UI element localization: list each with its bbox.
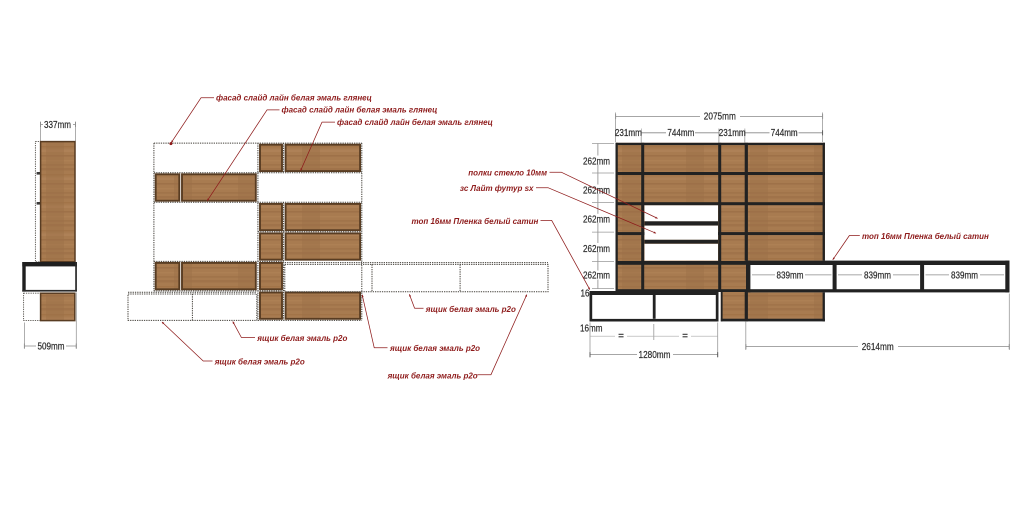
svg-text:262mm: 262mm: [583, 185, 610, 196]
svg-text:топ 16мм Пленка белый сатин: топ 16мм Пленка белый сатин: [862, 232, 989, 241]
svg-text:16mm: 16mm: [580, 324, 603, 335]
svg-text:=: =: [682, 331, 688, 342]
svg-text:262mm: 262mm: [583, 270, 610, 281]
svg-text:фасад слайд лайн белая эмаль г: фасад слайд лайн белая эмаль глянец: [216, 94, 372, 103]
svg-text:1280mm: 1280mm: [639, 350, 671, 361]
svg-text:2614mm: 2614mm: [862, 342, 894, 353]
svg-text:фасад слайд лайн белая эмаль г: фасад слайд лайн белая эмаль глянец: [337, 118, 493, 127]
svg-text:=: =: [618, 331, 624, 342]
svg-text:2075mm: 2075mm: [704, 112, 736, 123]
svg-text:231mm: 231mm: [719, 128, 746, 139]
svg-text:ящик белая эмаль р2о: ящик белая эмаль р2о: [389, 344, 480, 353]
svg-text:ящик белая эмаль р2о: ящик белая эмаль р2о: [387, 371, 478, 380]
svg-text:839mm: 839mm: [951, 270, 978, 281]
svg-text:509mm: 509mm: [38, 341, 65, 352]
svg-text:ящик белая эмаль р2о: ящик белая эмаль р2о: [256, 334, 347, 343]
svg-text:топ 16мм Пленка белый сатин: топ 16мм Пленка белый сатин: [411, 217, 538, 226]
svg-text:337mm: 337mm: [44, 120, 71, 131]
svg-text:262mm: 262mm: [583, 244, 610, 255]
svg-text:16: 16: [581, 289, 590, 300]
svg-text:744mm: 744mm: [771, 128, 798, 139]
svg-text:262mm: 262mm: [583, 215, 610, 226]
svg-text:262mm: 262mm: [583, 156, 610, 167]
svg-text:839mm: 839mm: [777, 270, 804, 281]
svg-text:полки стекло 10мм: полки стекло 10мм: [468, 169, 547, 178]
svg-text:839mm: 839mm: [864, 270, 891, 281]
svg-text:фасад слайд лайн белая эмаль г: фасад слайд лайн белая эмаль глянец: [282, 106, 438, 115]
svg-text:744mm: 744mm: [667, 128, 694, 139]
svg-text:ящик белая эмаль р2о: ящик белая эмаль р2о: [214, 358, 305, 367]
svg-text:ящик белая эмаль р2о: ящик белая эмаль р2о: [425, 305, 516, 314]
svg-text:зс Лайт футур sx: зс Лайт футур sx: [460, 184, 534, 193]
svg-text:231mm: 231mm: [615, 128, 642, 139]
